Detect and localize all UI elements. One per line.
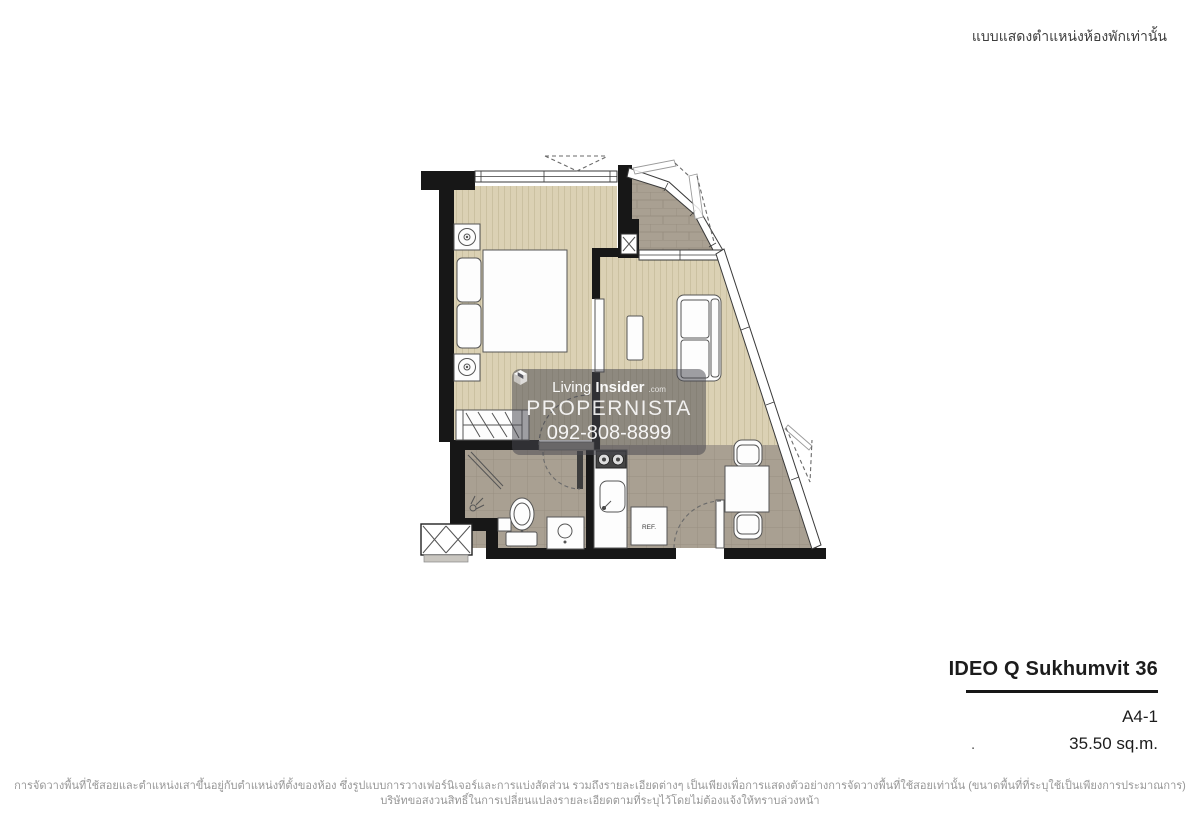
project-name: IDEO Q Sukhumvit 36 [949,658,1158,681]
wall-interior-upper [592,250,600,299]
disclaimer-line-2: บริษัทขอสงวนสิทธิ์ในการเปลี่ยนแปลงรายละเ… [0,794,1200,809]
title-underline [966,690,1158,693]
watermark-agency: PROPERNISTA [526,397,691,421]
refrigerator: REF. [631,507,667,545]
wall-bathroom-notch-v [486,531,498,548]
pillow-bottom [457,304,481,348]
watermark: LivingInsider.com PROPERNISTA 092-808-88… [512,369,706,455]
stray-dot: . [971,736,975,753]
unit-area: 35.50 sq.m. [949,734,1158,754]
unit-info-block: IDEO Q Sukhumvit 36 A4-1 35.50 sq.m. [949,658,1158,754]
side-table [627,316,643,360]
watermark-brand-bold: Insider [595,379,644,396]
wall-bathroom-left [450,440,465,524]
casement-swing-indicator [545,156,608,171]
living-insider-cube-icon [512,369,529,386]
bed [483,250,567,352]
entrance-door-leaf [716,500,724,548]
unit-type: A4-1 [949,707,1158,727]
wall-bottom-right-segment [724,548,826,559]
dining-table [725,466,769,512]
watermark-brand-light: Living [552,379,591,396]
wall-bottom-left-segment [486,548,676,559]
balcony-window-flap-1 [633,160,676,174]
refrigerator-label: REF. [642,524,656,531]
watermark-brand-tld: .com [649,385,666,394]
bathroom-door-leaf [577,451,583,489]
disclaimer: การจัดวางพื้นที่ใช้สอยและตำแหน่งเสาขึ้นอ… [0,779,1200,809]
wall-left [439,186,454,442]
pillow-top [457,258,481,302]
shaft-box [621,234,637,254]
wall-kitchen-divider [586,450,594,556]
ac-ledge [421,524,472,562]
location-note: แบบแสดงตำแหน่งห้องพักเท่านั้น [972,26,1167,48]
bath-corner-shelf [498,518,511,531]
watermark-phone: 092-808-8899 [547,422,672,445]
disclaimer-line-1: การจัดวางพื้นที่ใช้สอยและตำแหน่งเสาขึ้นอ… [0,779,1200,794]
kitchen-sink [600,481,625,512]
page-background: REF. [0,0,1200,828]
vanity-sink [547,517,584,549]
watermark-logo: LivingInsider.com [552,379,666,396]
sliding-door [595,299,604,372]
